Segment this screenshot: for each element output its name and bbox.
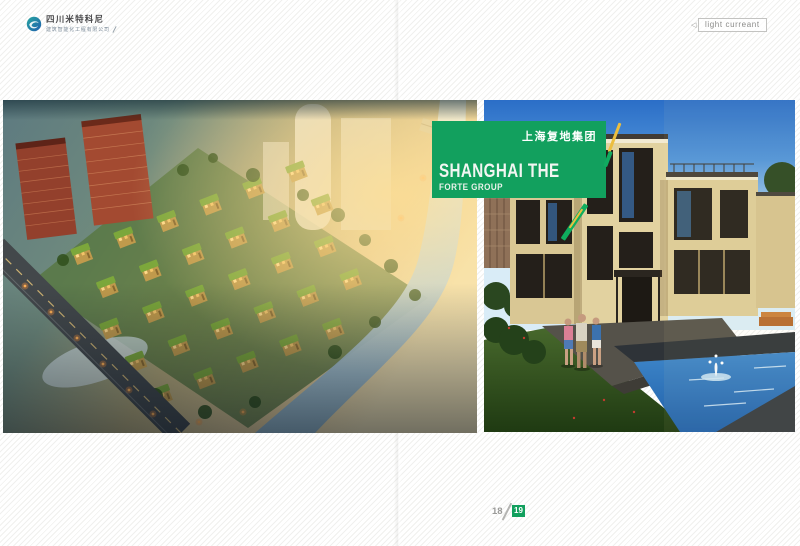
warm-light-overlay bbox=[664, 100, 795, 432]
page-number-left: 18 bbox=[492, 506, 503, 517]
light-current-tag: ◁ light curreant bbox=[698, 18, 767, 32]
brand-name: 四川米特科尼 bbox=[46, 15, 115, 24]
page-number-slash-icon bbox=[502, 503, 512, 521]
logo-swirl-icon bbox=[26, 16, 42, 32]
aerial-rendering-graphic bbox=[3, 100, 477, 433]
left-photo-aerial-rendering bbox=[3, 100, 477, 433]
banner-title-en: SHANGHAI THE bbox=[439, 161, 560, 183]
tag-label: light curreant bbox=[705, 20, 760, 29]
banner-subtitle-en: FORTE GROUP bbox=[439, 182, 503, 193]
logo-slash-mark bbox=[112, 26, 116, 33]
top-shadow bbox=[3, 100, 477, 433]
project-banner: 上海复地集团 SHANGHAI THE FORTE GROUP bbox=[432, 121, 606, 198]
brand-subtitle: 建筑智能化工程有限公司 bbox=[46, 28, 110, 33]
company-logo: 四川米特科尼 建筑智能化工程有限公司 bbox=[26, 15, 115, 33]
banner-group-name-cn: 上海复地集团 bbox=[522, 128, 597, 144]
tag-arrow-icon: ◁ bbox=[691, 21, 697, 29]
page-number-block: 18 19 bbox=[490, 501, 540, 525]
page-number-right-badge: 19 bbox=[512, 505, 525, 517]
